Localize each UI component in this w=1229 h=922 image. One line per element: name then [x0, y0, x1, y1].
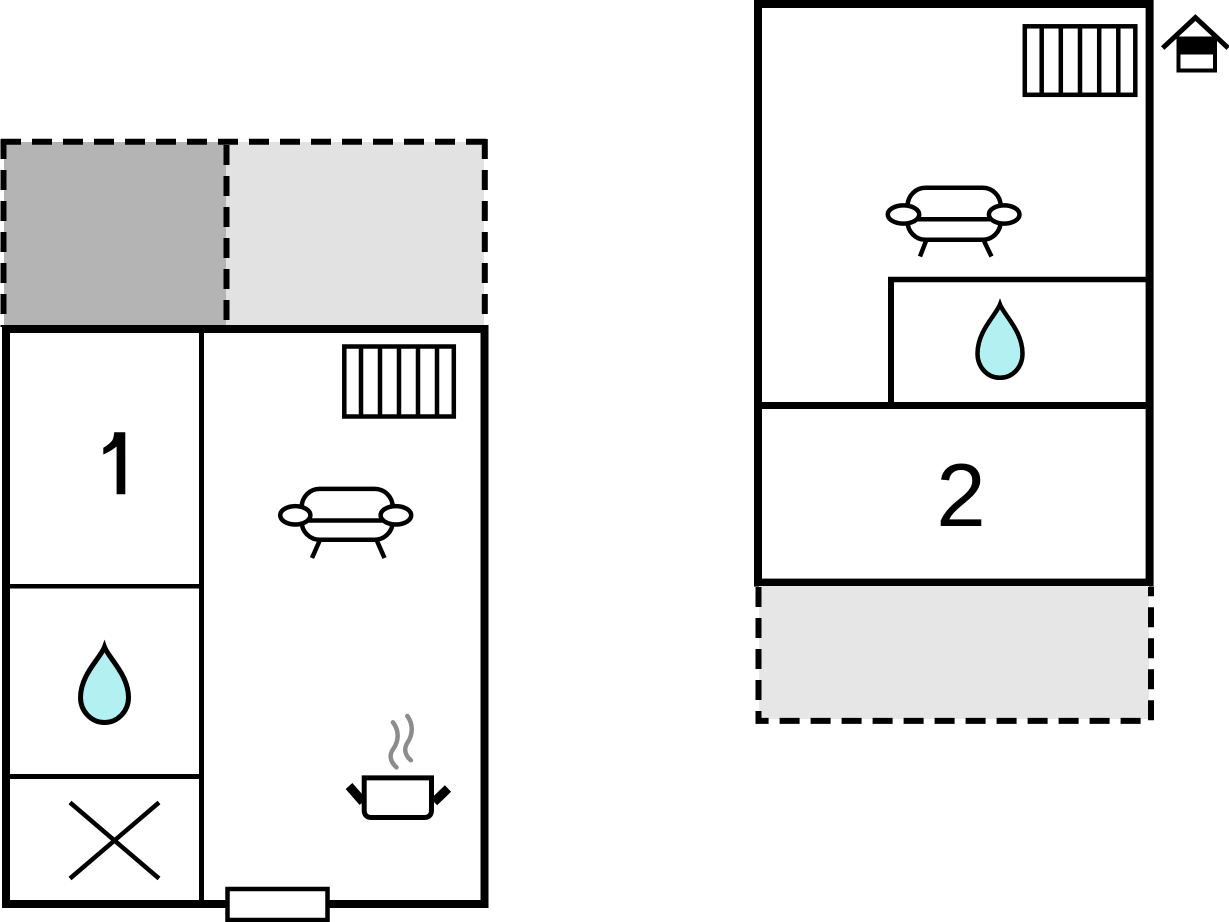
svg-text:2: 2 [936, 445, 986, 545]
